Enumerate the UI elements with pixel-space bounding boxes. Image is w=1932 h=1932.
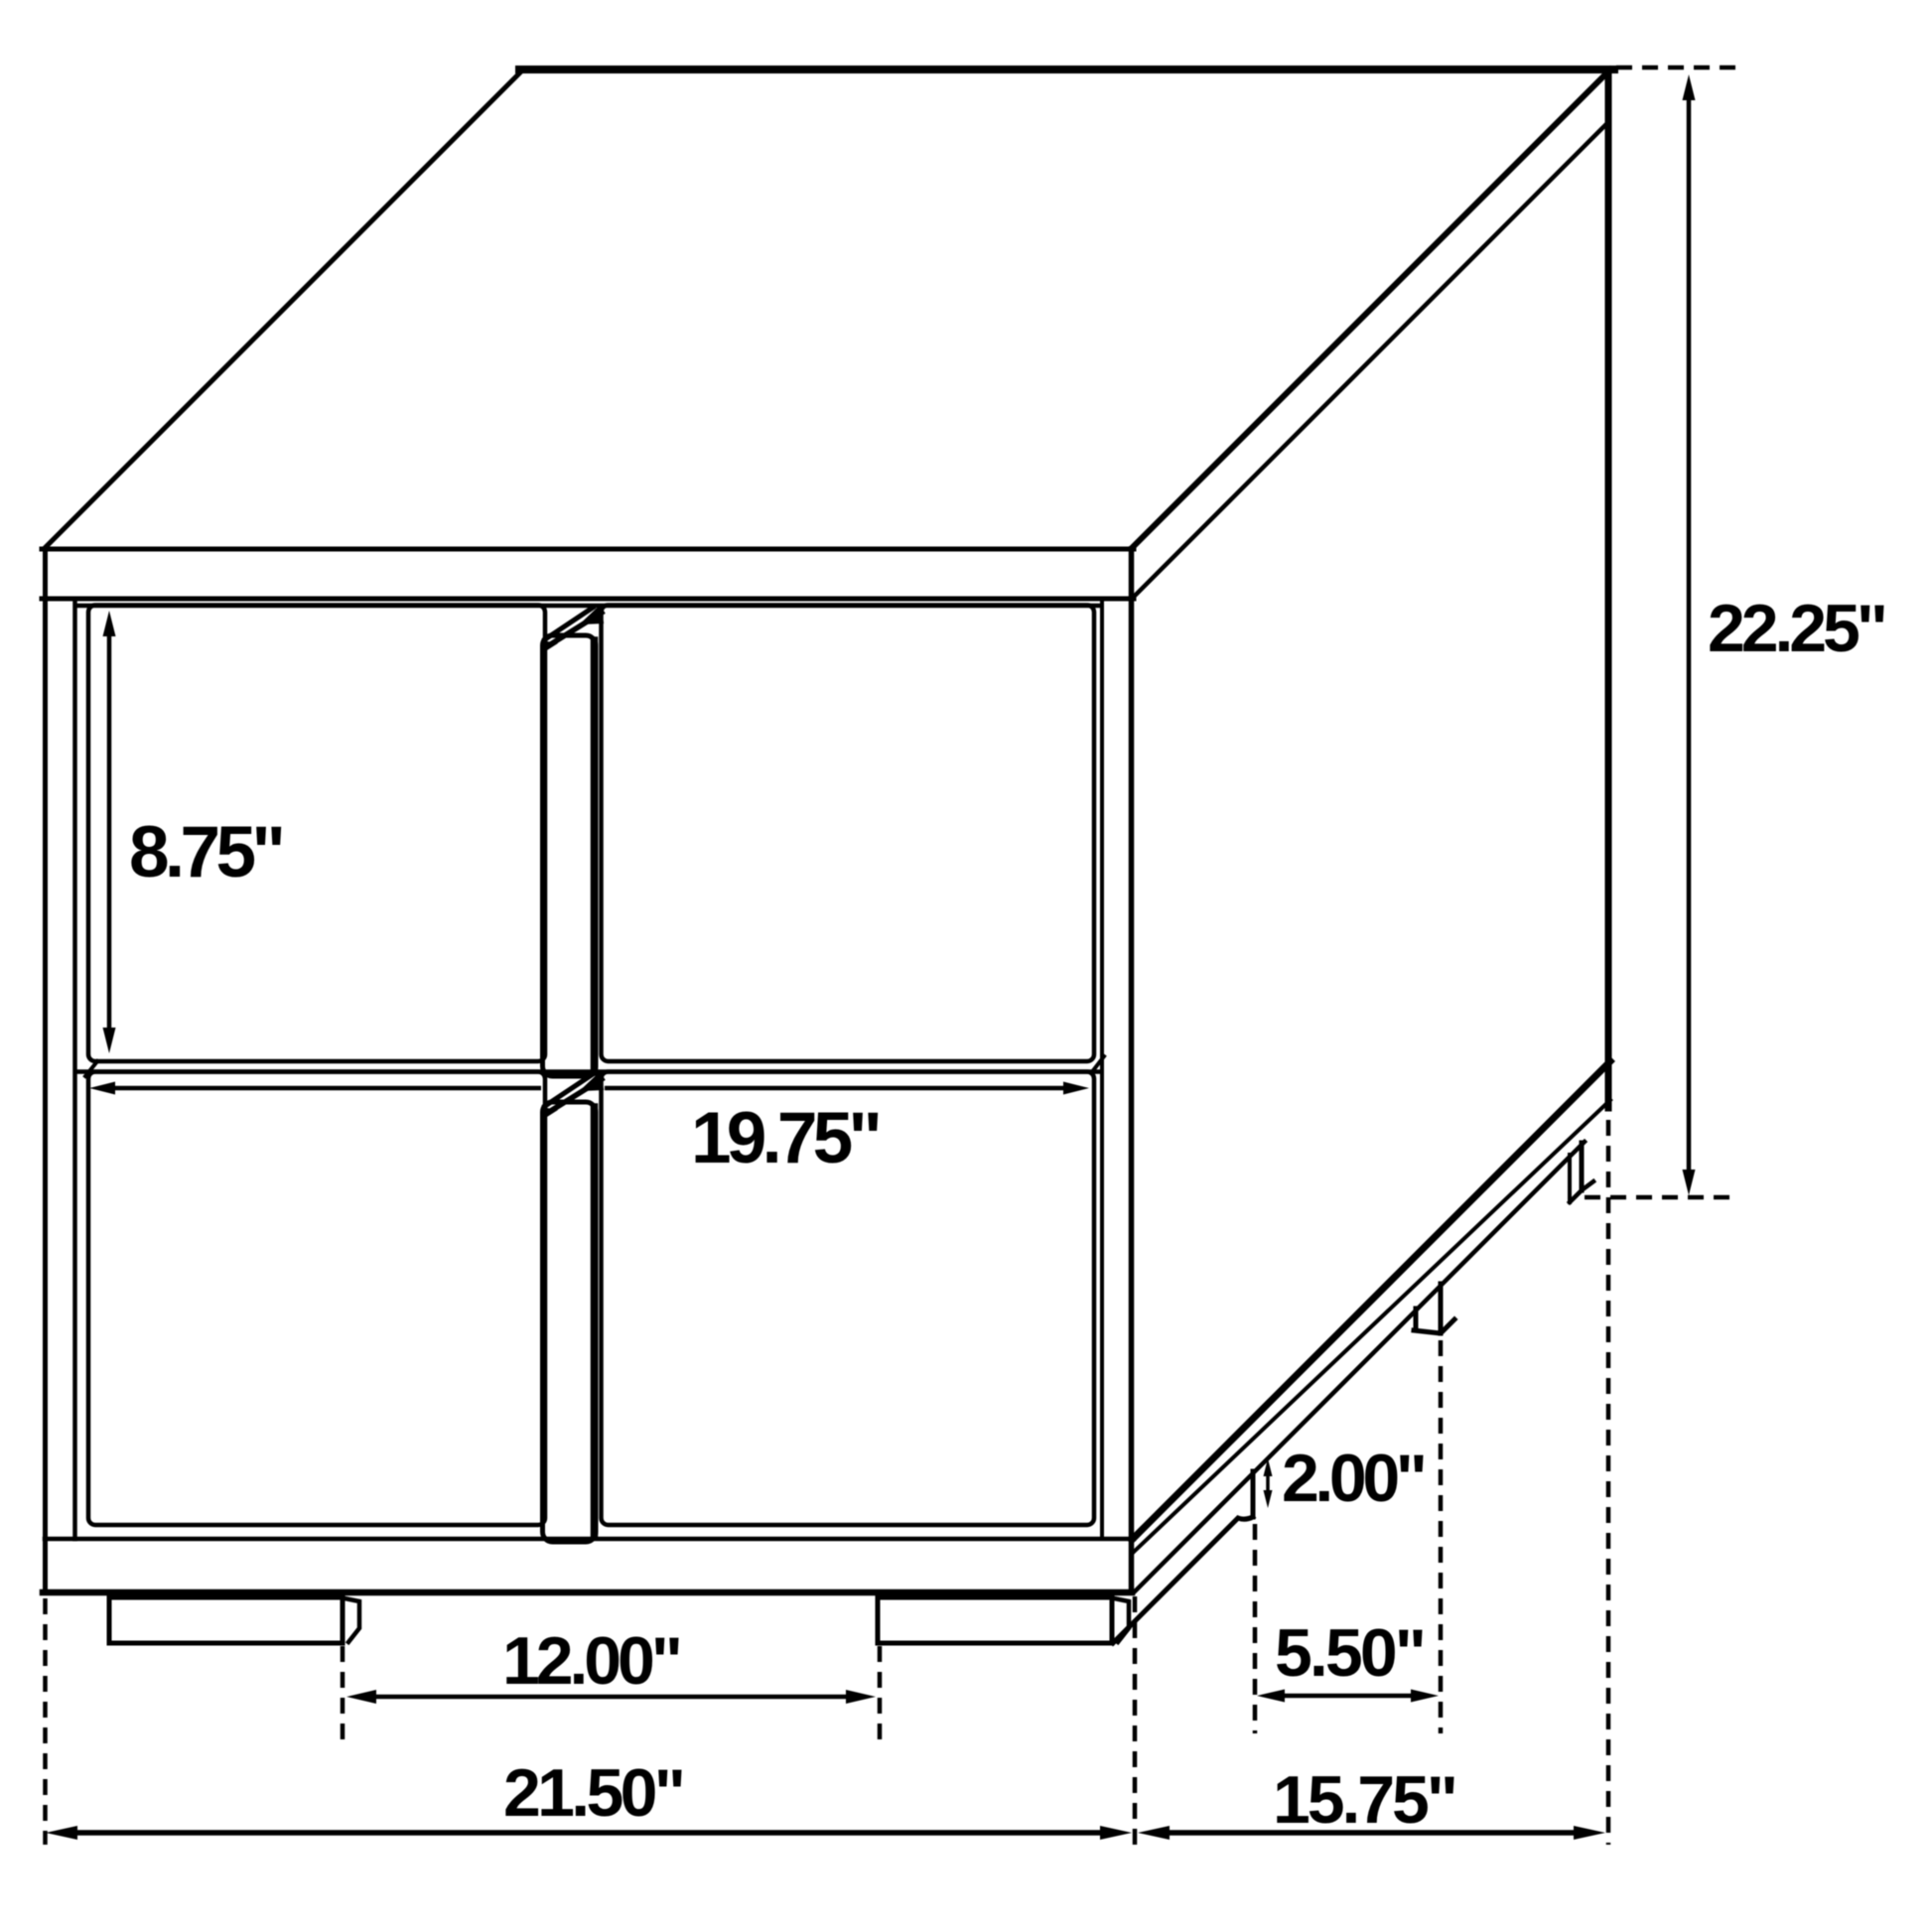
svg-text:15.75": 15.75" (1273, 1762, 1458, 1838)
svg-text:19.75": 19.75" (691, 1098, 883, 1178)
svg-text:2.00": 2.00" (1282, 1441, 1428, 1516)
svg-text:8.75": 8.75" (129, 812, 286, 893)
svg-text:12.00": 12.00" (502, 1623, 683, 1699)
svg-text:5.50": 5.50" (1275, 1615, 1427, 1691)
svg-text:21.50": 21.50" (503, 1755, 686, 1831)
svg-text:22.25": 22.25" (1708, 591, 1888, 666)
